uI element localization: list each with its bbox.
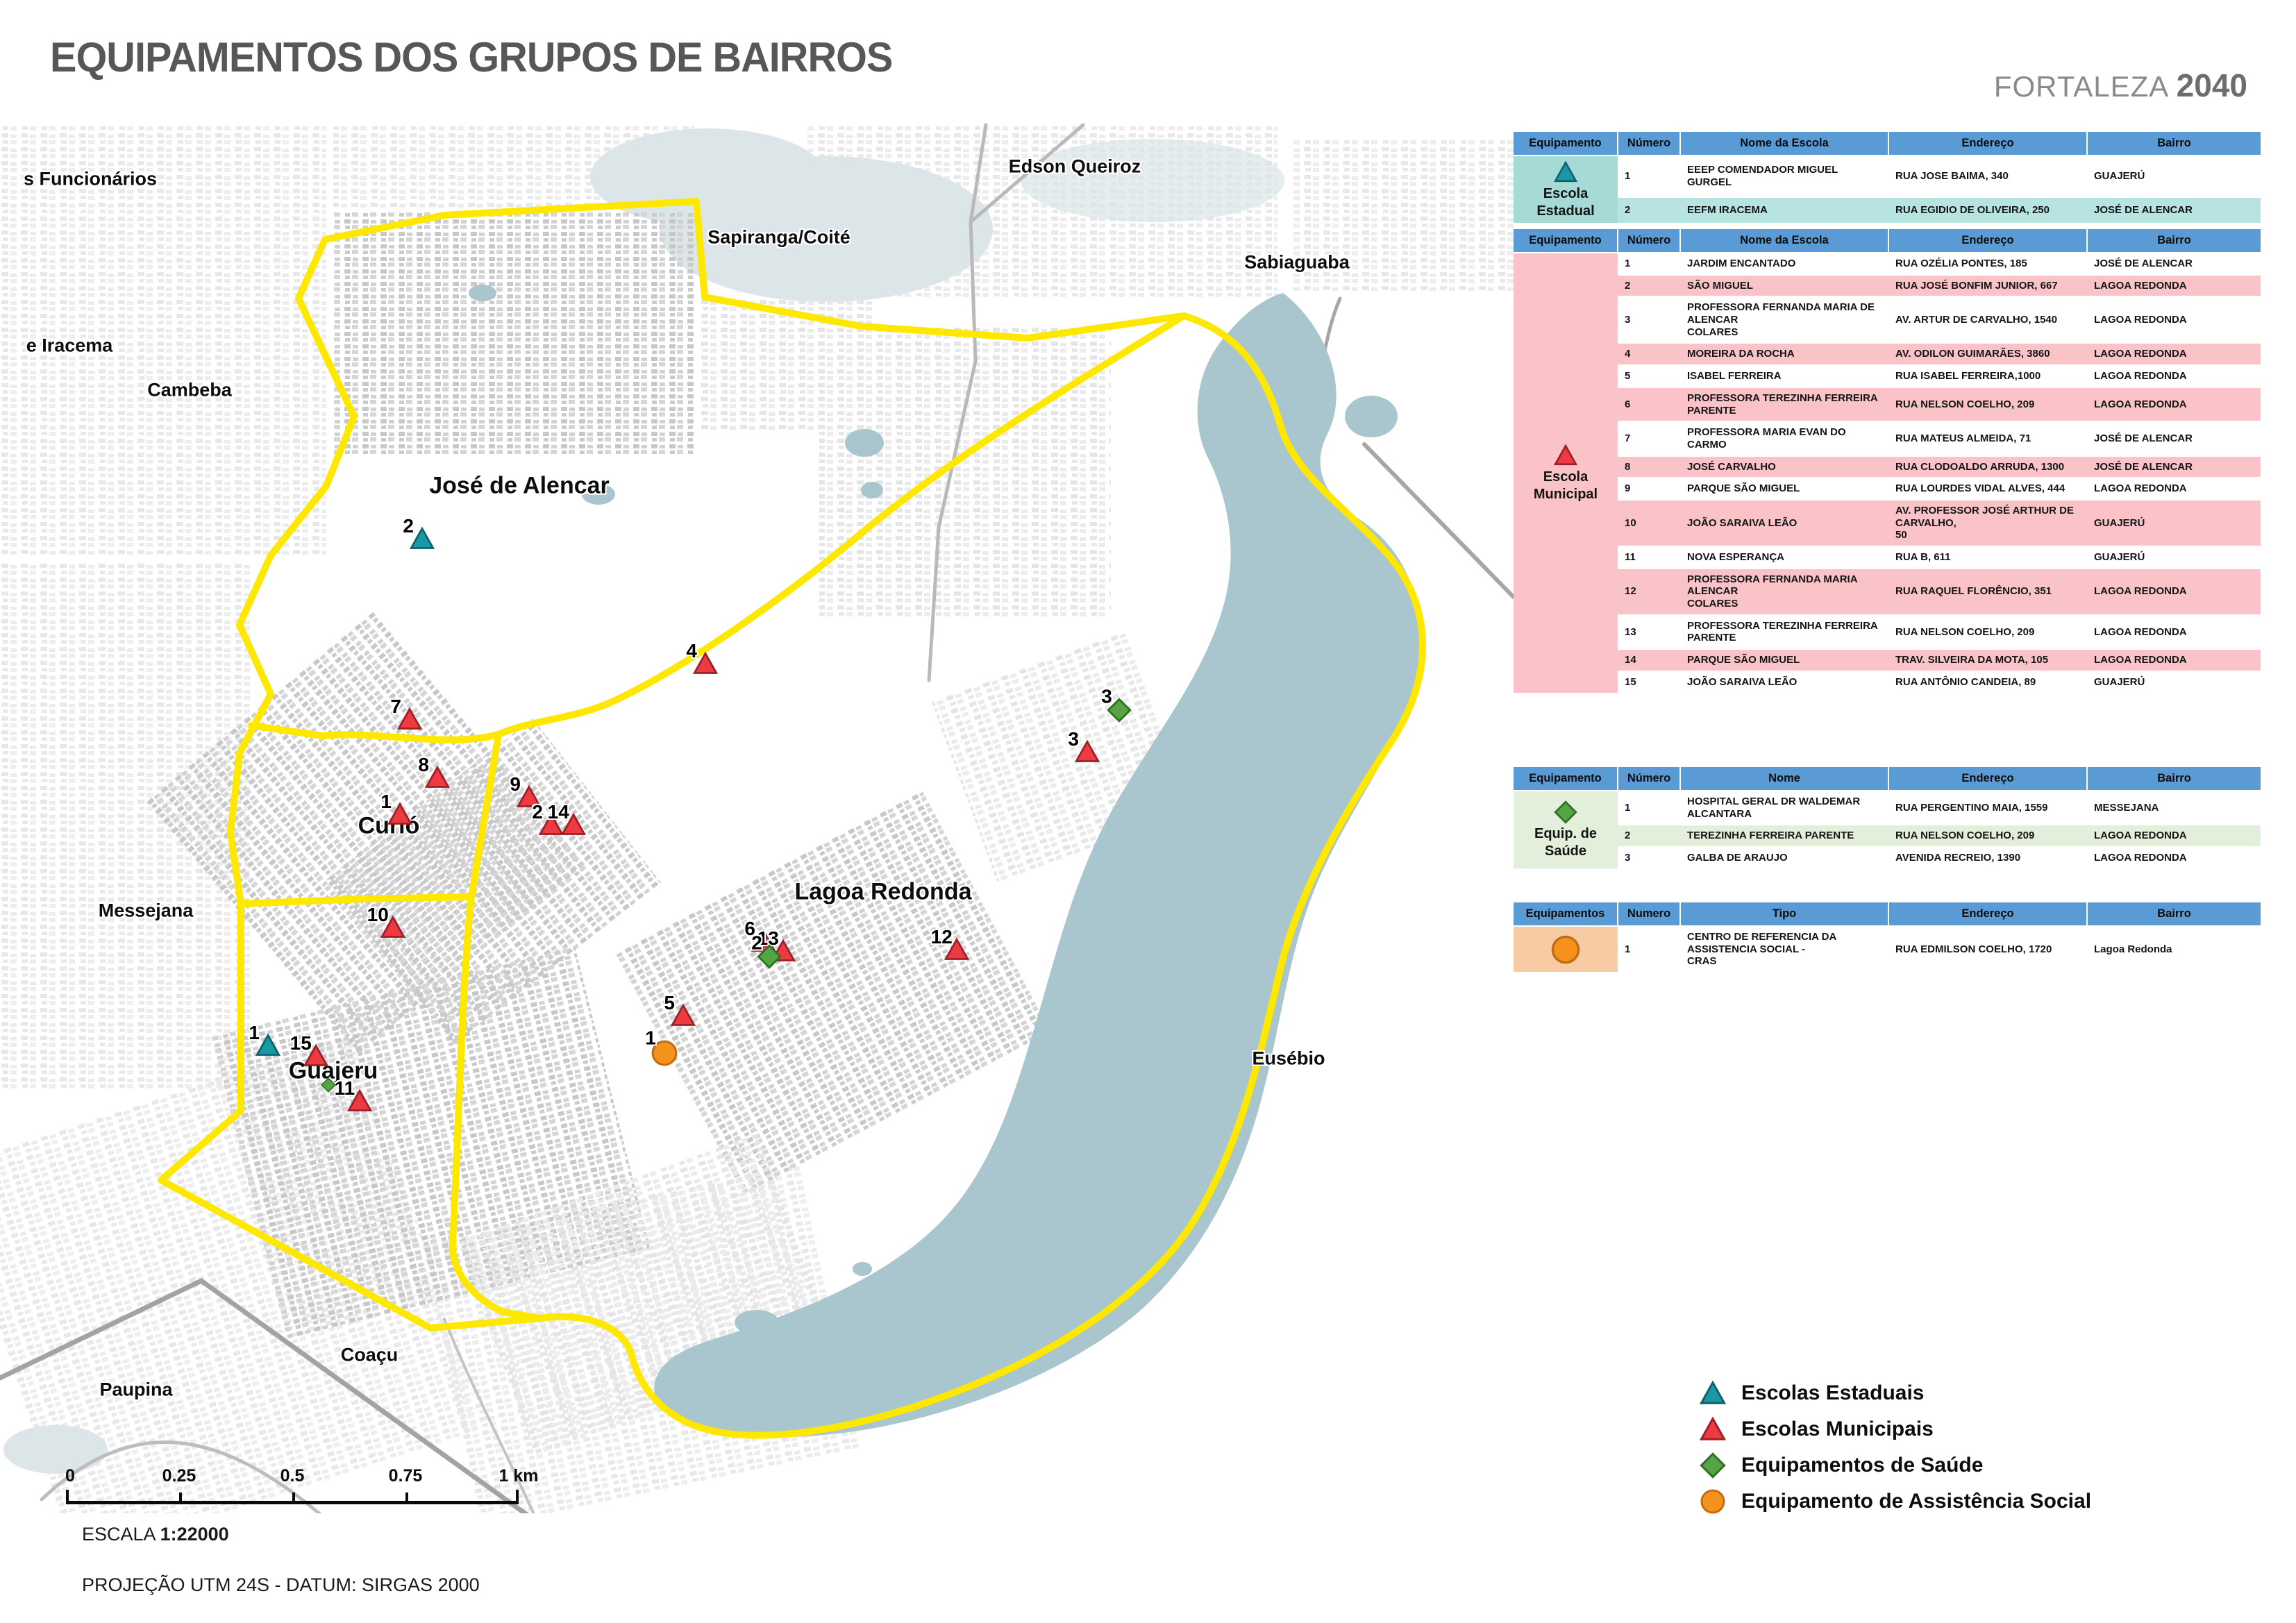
cell-bairro: JOSÉ DE ALENCAR <box>2087 197 2261 223</box>
cell-end: RUA B, 611 <box>1888 546 2087 569</box>
marker-number: 8 <box>418 754 429 776</box>
legend-item: Equipamento de Assistência Social <box>1700 1488 2091 1515</box>
column-header: Bairro <box>2087 767 2261 791</box>
cell-bairro: LAGOA REDONDA <box>2087 296 2261 343</box>
scale-tick-label: 0.5 <box>280 1466 305 1486</box>
cell-num: 3 <box>1618 847 1680 868</box>
column-header: Tipo <box>1680 902 1888 926</box>
group-label: Escola Estadual <box>1516 185 1615 220</box>
area-label: Coaçu <box>341 1345 399 1366</box>
cell-num: 1 <box>1618 791 1680 825</box>
cell-bairro: GUAJERÚ <box>2087 671 2261 693</box>
column-header: Nome da Escola <box>1680 132 1888 155</box>
legend-item: Escolas Estaduais <box>1700 1380 2091 1406</box>
cell-bairro: JOSÉ DE ALENCAR <box>2087 421 2261 455</box>
social-assistance-icon <box>1700 1488 1726 1515</box>
cell-name: PARQUE SÃO MIGUEL <box>1680 478 1888 500</box>
state-school-icon <box>1700 1380 1726 1406</box>
scale-bar-line <box>66 1487 519 1504</box>
table-row: 8JOSÉ CARVALHORUA CLODOALDO ARRUDA, 1300… <box>1514 456 2261 478</box>
table-row: 9PARQUE SÃO MIGUELRUA LOURDES VIDAL ALVE… <box>1514 478 2261 500</box>
cell-end: AV. ODILON GUIMARÃES, 3860 <box>1888 343 2087 365</box>
cell-num: 7 <box>1618 421 1680 455</box>
area-label: Sapiranga/Coité <box>707 227 850 249</box>
cell-end: RUA NELSON COELHO, 209 <box>1888 615 2087 649</box>
cell-end: RUA OZÉLIA PONTES, 185 <box>1888 253 2087 275</box>
table-row: 1CENTRO DE REFERENCIA DA ASSISTENCIA SOC… <box>1514 926 2261 972</box>
cell-name: HOSPITAL GERAL DR WALDEMAR ALCANTARA <box>1680 791 1888 825</box>
area-label: s Funcionários <box>24 169 157 190</box>
cell-bairro: GUAJERÚ <box>2087 546 2261 569</box>
cell-name: ISABEL FERREIRA <box>1680 365 1888 387</box>
table-row: 11NOVA ESPERANÇARUA B, 611GUAJERÚ <box>1514 546 2261 569</box>
marker-number: 15 <box>290 1032 312 1054</box>
table-saude: EquipamentoNúmeroNomeEndereçoBairroEquip… <box>1514 767 2261 868</box>
marker-number: 7 <box>390 696 401 718</box>
column-header: Nome da Escola <box>1680 229 1888 253</box>
area-label: Lagoa Redonda <box>794 879 971 906</box>
cell-bairro: LAGOA REDONDA <box>2087 365 2261 387</box>
area-label: Messejana <box>99 900 194 922</box>
cell-num: 2 <box>1618 825 1680 847</box>
table-row: Equip. de Saúde1HOSPITAL GERAL DR WALDEM… <box>1514 791 2261 825</box>
cell-bairro: LAGOA REDONDA <box>2087 615 2261 649</box>
cell-num: 12 <box>1618 569 1680 615</box>
group-cell-cras <box>1514 926 1618 972</box>
marker-number: 10 <box>367 904 389 926</box>
legend-label: Equipamento de Assistência Social <box>1741 1490 2091 1513</box>
cell-name: JOSÉ CARVALHO <box>1680 456 1888 478</box>
map-canvas: s Funcionáriose IracemaCambebaSapiranga/… <box>0 118 1514 1513</box>
cell-name: JOÃO SARAIVA LEÃO <box>1680 500 1888 546</box>
cell-end: AV. PROFESSOR JOSÉ ARTHUR DE CARVALHO, 5… <box>1888 500 2087 546</box>
cell-end: RUA PERGENTINO MAIA, 1559 <box>1888 791 2087 825</box>
cell-name: NOVA ESPERANÇA <box>1680 546 1888 569</box>
health-icon <box>1554 800 1577 824</box>
column-header: Equipamentos <box>1514 902 1618 926</box>
marker-number: 9 <box>510 773 521 796</box>
table-row: 2SÃO MIGUELRUA JOSÉ BONFIM JUNIOR, 667LA… <box>1514 275 2261 297</box>
municipal-school-icon <box>1554 444 1577 467</box>
legend-label: Escolas Estaduais <box>1741 1381 1924 1405</box>
cell-num: 5 <box>1618 365 1680 387</box>
cell-name: JOÃO SARAIVA LEÃO <box>1680 671 1888 693</box>
cell-end: AV. ARTUR DE CARVALHO, 1540 <box>1888 296 2087 343</box>
health-icon <box>1700 1452 1726 1479</box>
marker-number: 3 <box>1068 728 1079 750</box>
cell-num: 1 <box>1618 155 1680 197</box>
group-cell-saude: Equip. de Saúde <box>1514 791 1618 868</box>
cell-bairro: GUAJERÚ <box>2087 155 2261 197</box>
table-row: 7PROFESSORA MARIA EVAN DO CARMORUA MATEU… <box>1514 421 2261 455</box>
column-header: Endereço <box>1888 767 2087 791</box>
group-label: Escola Municipal <box>1516 469 1615 503</box>
legend-item: Escolas Municipais <box>1700 1416 2091 1443</box>
cell-bairro: MESSEJANA <box>2087 791 2261 825</box>
brand-name: FORTALEZA <box>1994 70 2168 103</box>
table-row: 10JOÃO SARAIVA LEÃOAV. PROFESSOR JOSÉ AR… <box>1514 500 2261 546</box>
area-label: José de Alencar <box>429 473 610 500</box>
cell-num: 15 <box>1618 671 1680 693</box>
map-base <box>0 118 1514 1513</box>
cell-num: 6 <box>1618 387 1680 421</box>
column-header: Bairro <box>2087 229 2261 253</box>
cell-num: 9 <box>1618 478 1680 500</box>
poster: EQUIPAMENTOS DOS GRUPOS DE BAIRROS FORTA… <box>0 0 2296 1623</box>
column-header: Número <box>1618 767 1680 791</box>
column-header: Número <box>1618 229 1680 253</box>
column-header: Número <box>1618 132 1680 155</box>
cell-name: PROFESSORA FERNANDA MARIA ALENCAR COLARE… <box>1680 569 1888 615</box>
marker-number: 2 <box>403 515 414 537</box>
cell-end: TRAV. SILVEIRA DA MOTA, 105 <box>1888 649 2087 671</box>
table-cras: EquipamentosNumeroTipoEndereçoBairro1CEN… <box>1514 902 2261 972</box>
area-label: Paupina <box>99 1379 172 1401</box>
social-assistance-icon <box>1550 934 1581 965</box>
cell-num: 1 <box>1618 253 1680 275</box>
municipal-school-icon <box>1700 1416 1726 1443</box>
table-row: 14PARQUE SÃO MIGUELTRAV. SILVEIRA DA MOT… <box>1514 649 2261 671</box>
column-header: Equipamento <box>1514 229 1618 253</box>
cell-bairro: Lagoa Redonda <box>2087 926 2261 972</box>
cell-end: RUA ISABEL FERREIRA,1000 <box>1888 365 2087 387</box>
cell-end: RUA EGIDIO DE OLIVEIRA, 250 <box>1888 197 2087 223</box>
column-header: Endereço <box>1888 229 2087 253</box>
cell-bairro: LAGOA REDONDA <box>2087 275 2261 297</box>
marker-number: 4 <box>686 640 697 662</box>
legend-label: Escolas Municipais <box>1741 1418 1934 1441</box>
marker-number: 2 <box>751 932 762 955</box>
marker-number: 1 <box>249 1022 260 1044</box>
scale-bar-labels: 00.250.50.751 km <box>66 1466 538 1487</box>
cell-end: RUA MATEUS ALMEIDA, 71 <box>1888 421 2087 455</box>
area-label: Edson Queiroz <box>1009 156 1141 178</box>
group-label: Equip. de Saúde <box>1516 825 1615 860</box>
cell-num: 2 <box>1618 197 1680 223</box>
scale-text: ESCALA 1:22000 <box>82 1524 229 1545</box>
area-label: Sabiaguaba <box>1244 252 1350 274</box>
group-cell-estadual: Escola Estadual <box>1514 155 1618 223</box>
table-row: 13PROFESSORA TEREZINHA FERREIRA PARENTER… <box>1514 615 2261 649</box>
table-row: 3PROFESSORA FERNANDA MARIA DE ALENCAR CO… <box>1514 296 2261 343</box>
legend-label: Equipamentos de Saúde <box>1741 1454 1983 1477</box>
cell-num: 8 <box>1618 456 1680 478</box>
table-row: 2EEFM IRACEMARUA EGIDIO DE OLIVEIRA, 250… <box>1514 197 2261 223</box>
cell-name: EEFM IRACEMA <box>1680 197 1888 223</box>
marker-number: 2 <box>532 801 543 823</box>
area-label: Eusébio <box>1252 1048 1325 1070</box>
cell-end: RUA RAQUEL FLORÊNCIO, 351 <box>1888 569 2087 615</box>
page-title: EQUIPAMENTOS DOS GRUPOS DE BAIRROS <box>50 33 892 81</box>
column-header: Nome <box>1680 767 1888 791</box>
area-label: Cambeba <box>147 380 232 401</box>
marker-number: 3 <box>1101 686 1112 708</box>
marker-number: 14 <box>548 801 569 823</box>
health-icon <box>321 1077 336 1093</box>
cell-bairro: LAGOA REDONDA <box>2087 649 2261 671</box>
cell-bairro: JOSÉ DE ALENCAR <box>2087 456 2261 478</box>
cell-bairro: JOSÉ DE ALENCAR <box>2087 253 2261 275</box>
cell-name: PROFESSORA TEREZINHA FERREIRA PARENTE <box>1680 615 1888 649</box>
cell-name: GALBA DE ARAUJO <box>1680 847 1888 868</box>
marker-number: 11 <box>335 1077 355 1100</box>
cell-bairro: LAGOA REDONDA <box>2087 847 2261 868</box>
table-row: 5ISABEL FERREIRARUA ISABEL FERREIRA,1000… <box>1514 365 2261 387</box>
table-row: 15JOÃO SARAIVA LEÃORUA ANTÔNIO CANDEIA, … <box>1514 671 2261 693</box>
marker-number: 12 <box>931 926 953 948</box>
cell-end: RUA CLODOALDO ARRUDA, 1300 <box>1888 456 2087 478</box>
cell-name: PROFESSORA MARIA EVAN DO CARMO <box>1680 421 1888 455</box>
column-header: Endereço <box>1888 132 2087 155</box>
cell-bairro: LAGOA REDONDA <box>2087 387 2261 421</box>
brand-logo: FORTALEZA 2040 <box>1994 67 2247 104</box>
cell-num: 14 <box>1618 649 1680 671</box>
column-header: Endereço <box>1888 902 2087 926</box>
table-estadual: EquipamentoNúmeroNome da EscolaEndereçoB… <box>1514 132 2261 223</box>
cell-bairro: LAGOA REDONDA <box>2087 569 2261 615</box>
table-municipal: EquipamentoNúmeroNome da EscolaEndereçoB… <box>1514 229 2261 693</box>
column-header: Numero <box>1618 902 1680 926</box>
table-row: 3GALBA DE ARAUJOAVENIDA RECREIO, 1390LAG… <box>1514 847 2261 868</box>
cell-num: 11 <box>1618 546 1680 569</box>
scale-bar: 00.250.50.751 km <box>66 1466 538 1504</box>
cell-num: 3 <box>1618 296 1680 343</box>
projection-text: PROJEÇÃO UTM 24S - DATUM: SIRGAS 2000 <box>82 1574 480 1596</box>
cell-end: RUA NELSON COELHO, 209 <box>1888 387 2087 421</box>
cell-num: 13 <box>1618 615 1680 649</box>
column-header: Equipamento <box>1514 132 1618 155</box>
cell-end: RUA NELSON COELHO, 209 <box>1888 825 2087 847</box>
scale-tick-label: 0.25 <box>162 1466 196 1486</box>
cell-end: RUA JOSÉ BONFIM JUNIOR, 667 <box>1888 275 2087 297</box>
cell-bairro: LAGOA REDONDA <box>2087 343 2261 365</box>
cell-bairro: GUAJERÚ <box>2087 500 2261 546</box>
scale-tick-label: 0.75 <box>389 1466 423 1486</box>
column-header: Bairro <box>2087 902 2261 926</box>
state-school-icon <box>1554 160 1577 184</box>
legend: Escolas EstaduaisEscolas MunicipaisEquip… <box>1700 1380 2091 1524</box>
cell-num: 10 <box>1618 500 1680 546</box>
cell-num: 4 <box>1618 343 1680 365</box>
table-row: Escola Municipal1JARDIM ENCANTADORUA OZÉ… <box>1514 253 2261 275</box>
scale-tick-label: 0 <box>65 1466 75 1486</box>
table-row: Escola Estadual1EEEP COMENDADOR MIGUEL G… <box>1514 155 2261 197</box>
brand-year: 2040 <box>2177 67 2247 103</box>
table-row: 4MOREIRA DA ROCHAAV. ODILON GUIMARÃES, 3… <box>1514 343 2261 365</box>
cell-name: SÃO MIGUEL <box>1680 275 1888 297</box>
legend-item: Equipamentos de Saúde <box>1700 1452 2091 1479</box>
cell-name: EEEP COMENDADOR MIGUEL GURGEL <box>1680 155 1888 197</box>
cell-name: PARQUE SÃO MIGUEL <box>1680 649 1888 671</box>
cell-bairro: LAGOA REDONDA <box>2087 825 2261 847</box>
marker-number: 1 <box>380 791 392 813</box>
cell-name: TEREZINHA FERREIRA PARENTE <box>1680 825 1888 847</box>
cell-name: PROFESSORA TEREZINHA FERREIRA PARENTE <box>1680 387 1888 421</box>
cell-name: MOREIRA DA ROCHA <box>1680 343 1888 365</box>
cell-end: RUA EDMILSON COELHO, 1720 <box>1888 926 2087 972</box>
cell-bairro: LAGOA REDONDA <box>2087 478 2261 500</box>
marker-number: 1 <box>645 1027 656 1050</box>
table-row: 6PROFESSORA TEREZINHA FERREIRA PARENTERU… <box>1514 387 2261 421</box>
cell-num: 1 <box>1618 926 1680 972</box>
column-header: Bairro <box>2087 132 2261 155</box>
column-header: Equipamento <box>1514 767 1618 791</box>
table-row: 12PROFESSORA FERNANDA MARIA ALENCAR COLA… <box>1514 569 2261 615</box>
cell-num: 2 <box>1618 275 1680 297</box>
cell-name: CENTRO DE REFERENCIA DA ASSISTENCIA SOCI… <box>1680 926 1888 972</box>
cell-end: RUA LOURDES VIDAL ALVES, 444 <box>1888 478 2087 500</box>
cell-name: PROFESSORA FERNANDA MARIA DE ALENCAR COL… <box>1680 296 1888 343</box>
cell-end: RUA ANTÔNIO CANDEIA, 89 <box>1888 671 2087 693</box>
area-label: e Iracema <box>26 335 113 357</box>
cell-name: JARDIM ENCANTADO <box>1680 253 1888 275</box>
cell-end: RUA JOSE BAIMA, 340 <box>1888 155 2087 197</box>
cell-end: AVENIDA RECREIO, 1390 <box>1888 847 2087 868</box>
group-cell-municipal: Escola Municipal <box>1514 253 1618 693</box>
marker-number: 5 <box>664 992 675 1014</box>
scale-tick-label: 1 km <box>499 1466 539 1486</box>
table-row: 2TEREZINHA FERREIRA PARENTERUA NELSON CO… <box>1514 825 2261 847</box>
